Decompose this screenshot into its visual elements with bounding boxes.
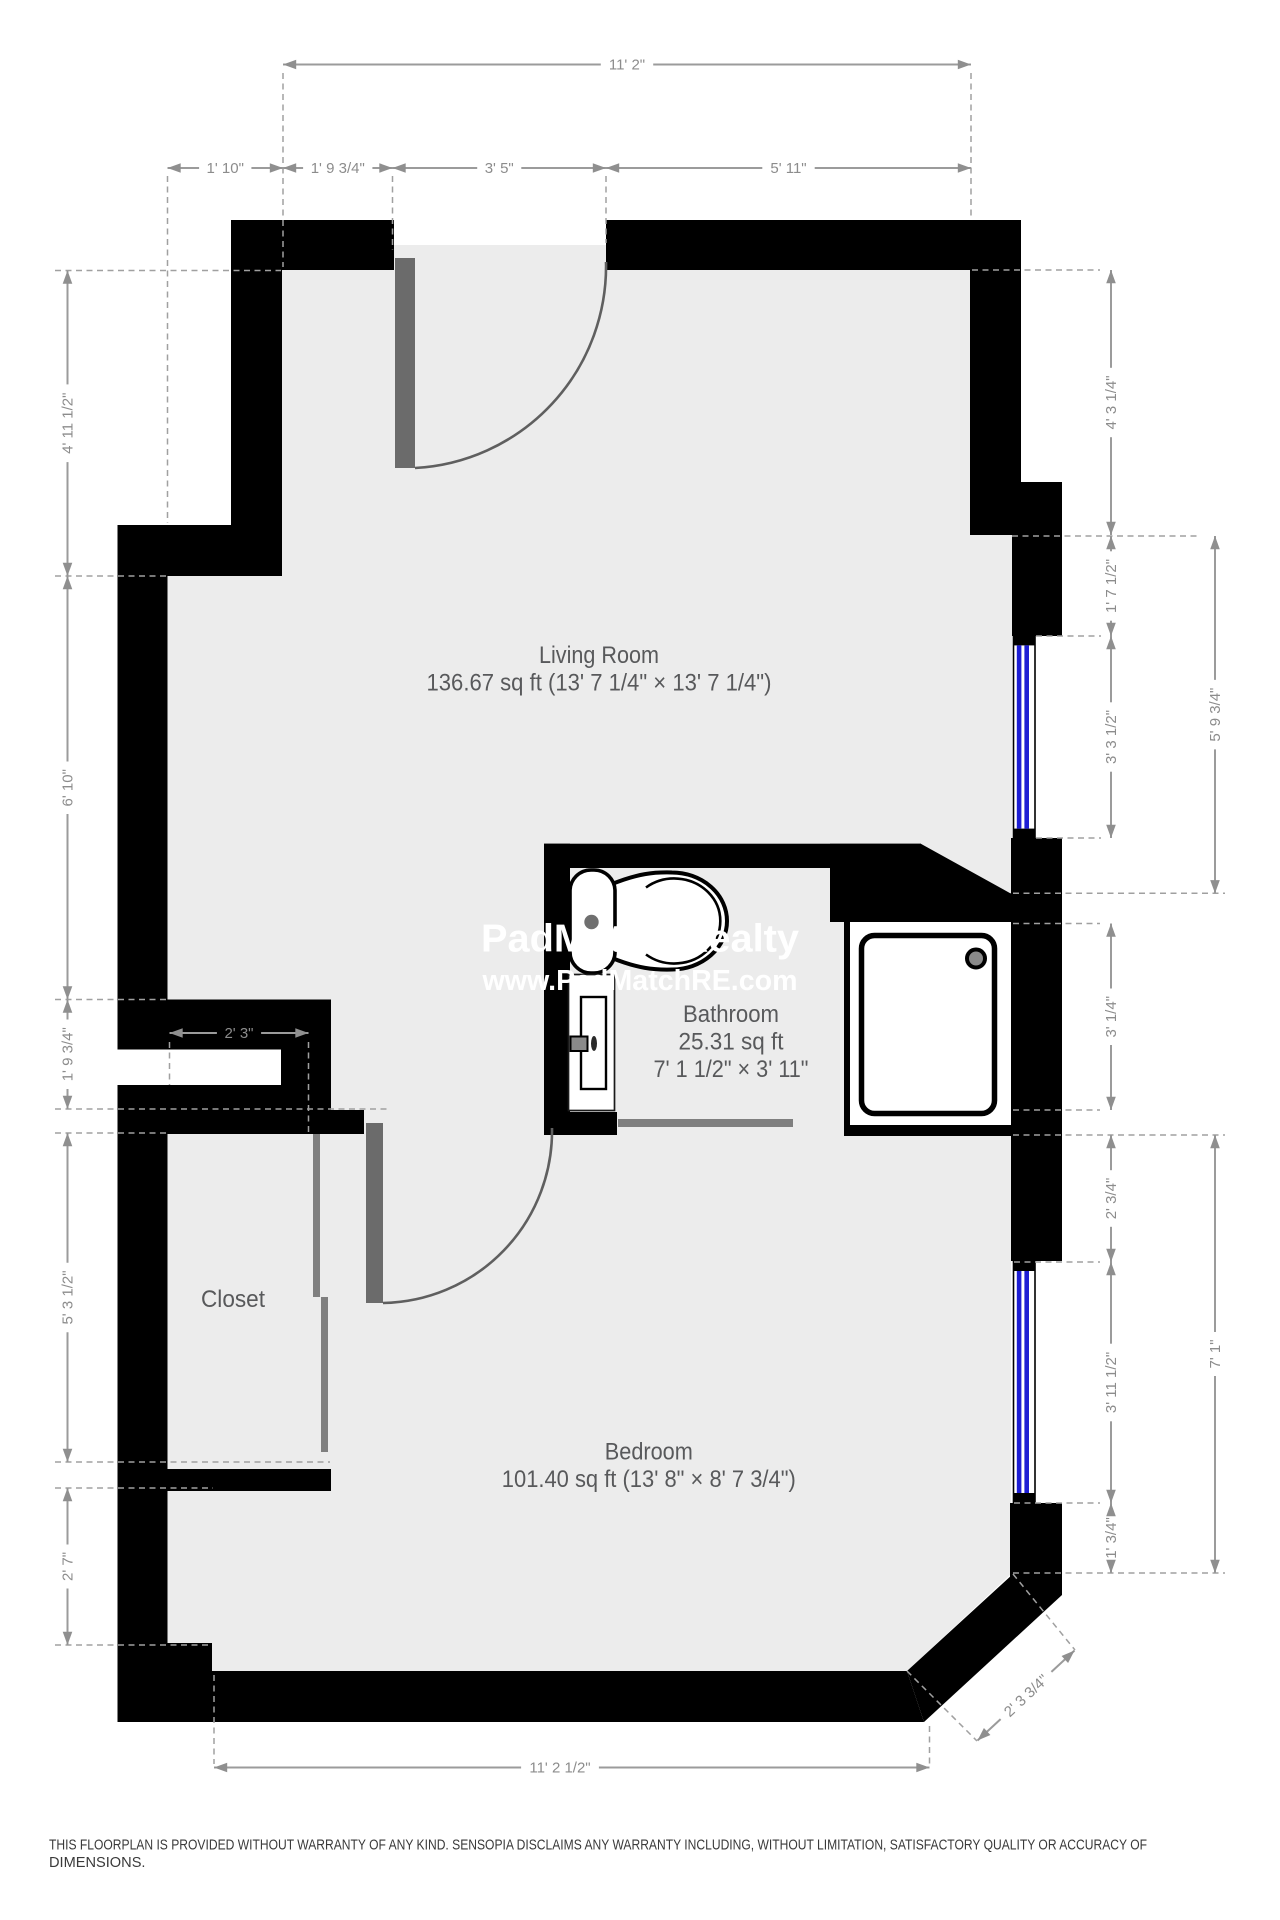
svg-text:Bedroom: Bedroom [605, 1439, 693, 1466]
svg-text:101.40 sq ft (13' 8" × 8' 7 3/: 101.40 sq ft (13' 8" × 8' 7 3/4") [502, 1466, 796, 1493]
svg-text:3' 11 1/2": 3' 11 1/2" [1103, 1352, 1120, 1413]
svg-text:7' 1 1/2" × 3' 11": 7' 1 1/2" × 3' 11" [654, 1056, 809, 1083]
svg-text:6' 10": 6' 10" [60, 769, 77, 806]
svg-text:11' 2 1/2": 11' 2 1/2" [529, 1760, 590, 1777]
svg-text:1' 3/4": 1' 3/4" [1103, 1517, 1120, 1559]
svg-text:3' 1/4": 3' 1/4" [1103, 996, 1120, 1038]
svg-text:1' 7 1/2": 1' 7 1/2" [1103, 559, 1120, 613]
svg-text:PadMatch Realty: PadMatch Realty [481, 918, 799, 961]
svg-text:Closet: Closet [201, 1286, 265, 1313]
svg-text:1' 9 3/4": 1' 9 3/4" [60, 1027, 77, 1081]
svg-text:3' 3 1/2": 3' 3 1/2" [1103, 710, 1120, 764]
svg-text:11' 2": 11' 2" [609, 57, 645, 74]
svg-text:2' 3/4": 2' 3/4" [1103, 1178, 1120, 1220]
svg-text:2' 3": 2' 3" [224, 1025, 253, 1042]
svg-text:3' 5": 3' 5" [485, 160, 514, 177]
svg-text:4' 11 1/2": 4' 11 1/2" [60, 393, 77, 454]
svg-text:Bathroom: Bathroom [683, 1001, 779, 1028]
svg-text:2' 7": 2' 7" [60, 1552, 77, 1581]
svg-text:25.31 sq ft: 25.31 sq ft [679, 1029, 784, 1056]
svg-text:136.67 sq ft (13' 7 1/4" × 13': 136.67 sq ft (13' 7 1/4" × 13' 7 1/4") [427, 670, 772, 697]
svg-text:5' 3 1/2": 5' 3 1/2" [60, 1270, 77, 1324]
svg-text:7' 1": 7' 1" [1207, 1339, 1224, 1368]
svg-text:4' 3 1/4": 4' 3 1/4" [1103, 375, 1120, 429]
svg-text:5' 9 3/4": 5' 9 3/4" [1207, 688, 1224, 742]
svg-text:THIS FLOORPLAN IS PROVIDED WIT: THIS FLOORPLAN IS PROVIDED WITHOUT WARRA… [49, 1838, 1147, 1854]
svg-text:www.PadMatchRE.com: www.PadMatchRE.com [482, 965, 798, 997]
svg-text:DIMENSIONS.: DIMENSIONS. [49, 1855, 146, 1871]
svg-text:Living Room: Living Room [539, 642, 659, 669]
svg-text:5' 11": 5' 11" [770, 160, 806, 177]
svg-text:1' 10": 1' 10" [207, 160, 244, 177]
svg-text:1' 9 3/4": 1' 9 3/4" [311, 160, 365, 177]
